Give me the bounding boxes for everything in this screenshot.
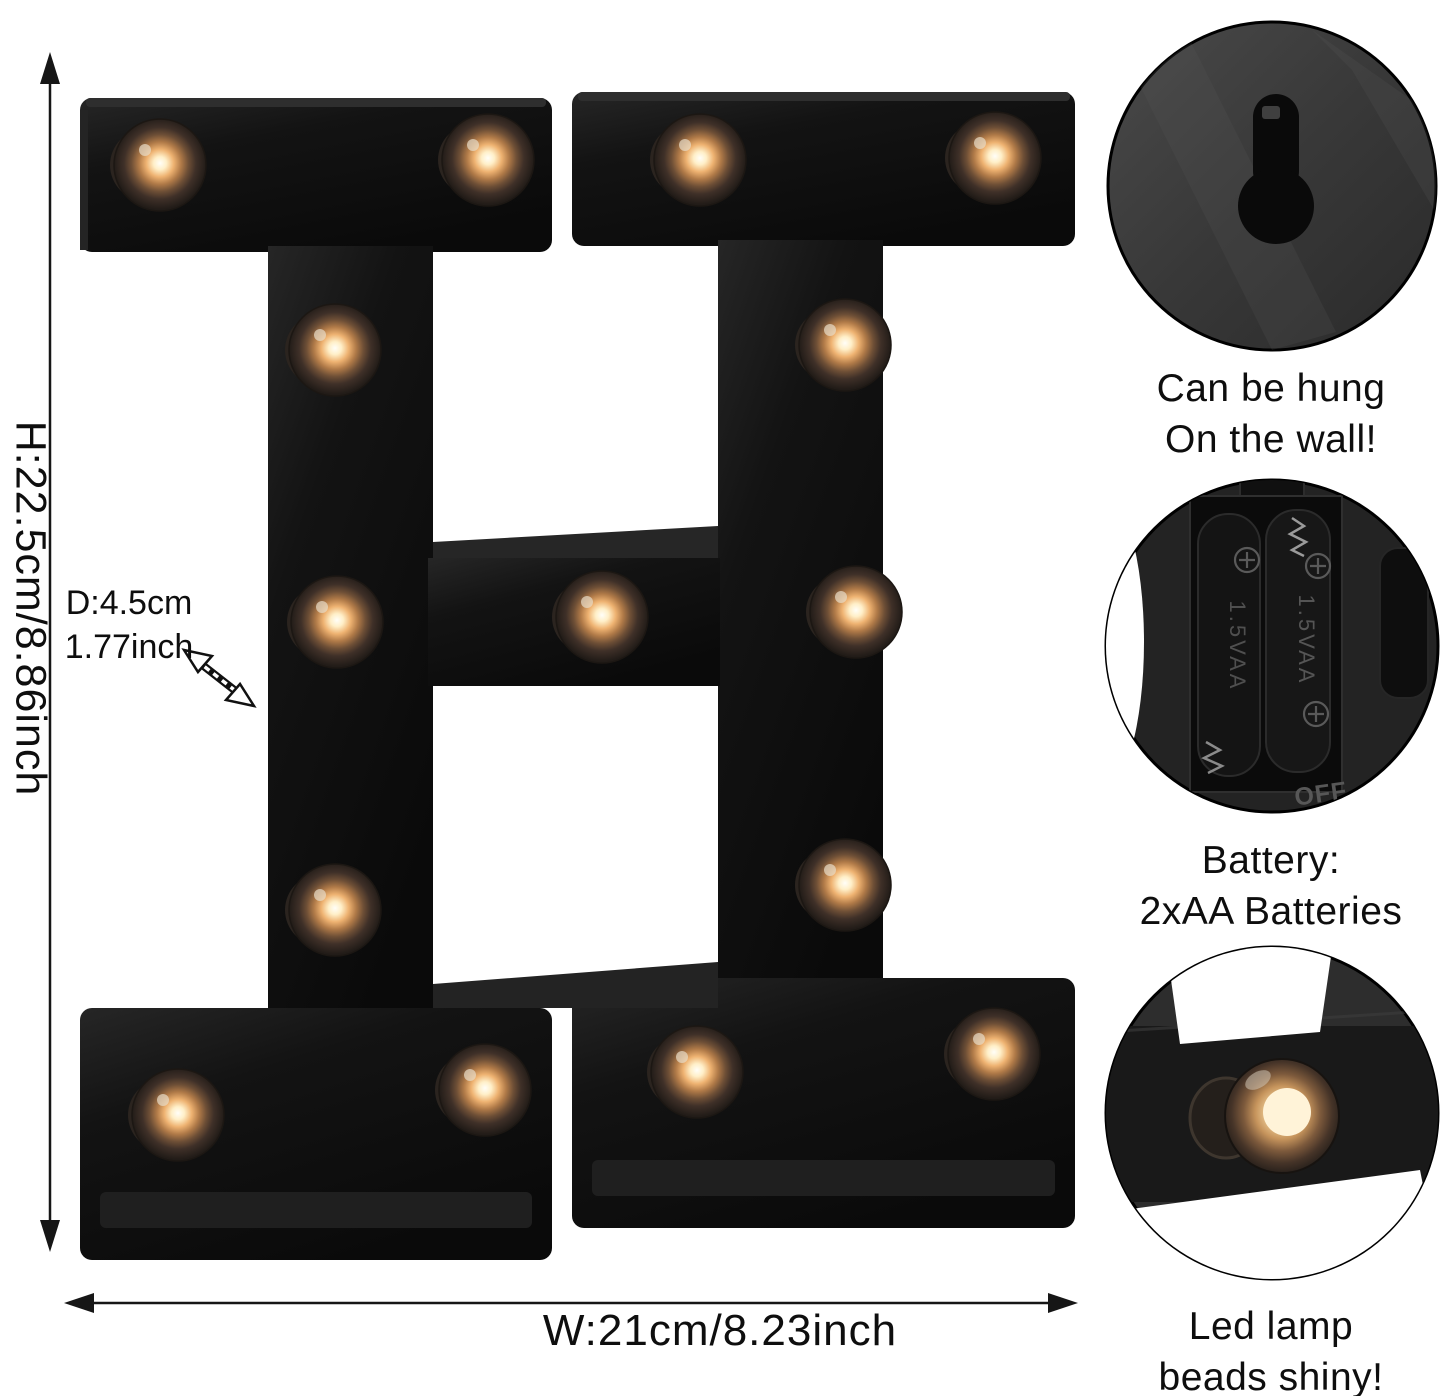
caption-battery: Battery: 2xAA Batteries: [1085, 836, 1445, 937]
depth-label-line2: 1.77inch: [36, 626, 222, 670]
caption-wall-hang: Can be hung On the wall!: [1085, 364, 1445, 465]
switch-off-label: OFF: [1293, 777, 1349, 812]
marquee-letter-graphic: 1.5VAA 1.5VAA OFF: [0, 0, 1445, 1396]
battery-print-left: 1.5VAA: [1225, 601, 1250, 692]
lower-counter-hole: [433, 686, 718, 1008]
caption-line: Can be hung: [1085, 364, 1445, 415]
battery-print-right: 1.5VAA: [1294, 595, 1319, 686]
callout-circle-wall-hang: [1108, 22, 1445, 350]
letter-hole-cutout: [1166, 936, 1334, 1044]
depth-dimension-label: D:4.5cm 1.77inch: [36, 582, 222, 669]
letter-h-shape: [80, 92, 1075, 1260]
width-dimension-label: W:21cm/8.23inch: [360, 1306, 1080, 1356]
caption-line: Led lamp: [1085, 1302, 1445, 1353]
upper-counter-hole: [433, 252, 718, 558]
caption-line: 2xAA Batteries: [1085, 887, 1445, 938]
depth-label-line1: D:4.5cm: [36, 582, 222, 626]
product-infographic: 1.5VAA 1.5VAA OFF H:22.5cm/: [0, 0, 1445, 1396]
callout-circle-battery: 1.5VAA 1.5VAA OFF: [1056, 474, 1438, 812]
caption-line: Battery:: [1085, 836, 1445, 887]
caption-line: On the wall!: [1085, 415, 1445, 466]
callout-circle-led: [1104, 936, 1444, 1296]
caption-line: beads shiny!: [1085, 1353, 1445, 1396]
caption-led-beads: Led lamp beads shiny!: [1085, 1302, 1445, 1396]
